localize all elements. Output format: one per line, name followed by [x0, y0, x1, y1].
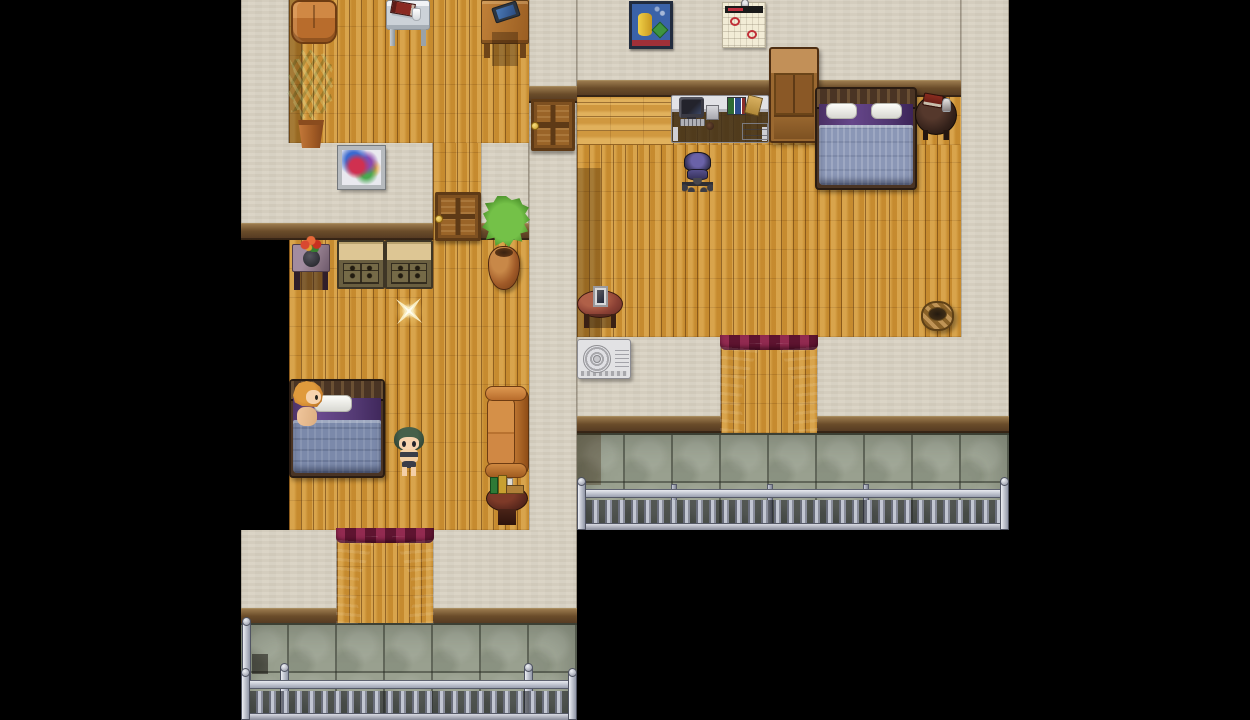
office-chair: [681, 151, 715, 193]
dresser-b: [385, 240, 433, 289]
right-railing-rail-top: [577, 489, 1009, 498]
computer-desk-monitor: [679, 97, 704, 118]
hall-door[interactable]: [435, 192, 481, 241]
photo-table: [577, 286, 623, 328]
nightstand-book: [922, 92, 944, 108]
bed-right-pillow-a: [826, 103, 857, 119]
flower-stand: [292, 238, 330, 290]
wall-plant: [482, 196, 530, 248]
computer-desk: [671, 95, 769, 143]
side-desk-tablet: [491, 0, 521, 23]
right-floor-entry: [577, 97, 673, 145]
left-doorway-curtain[interactable]: [336, 528, 434, 624]
air-conditioner-fan: [583, 345, 611, 373]
wardrobe[interactable]: [769, 47, 819, 143]
computer-desk-drawers: [742, 123, 768, 140]
side-desk: [481, 0, 529, 58]
book-table-book-flat: [506, 485, 524, 494]
wall-poster: [629, 1, 673, 49]
bed-right: [815, 87, 917, 190]
left-wall-mid: [241, 143, 433, 240]
computer-desk-keyboard: [680, 119, 705, 126]
abstract-painting: [338, 146, 385, 189]
air-conditioner: [577, 339, 631, 379]
player-character-leg-r: [411, 467, 416, 476]
left-wall-right-top: [529, 0, 577, 103]
sparkle-pickup[interactable]: [392, 294, 426, 328]
wall-calendar: [722, 2, 766, 48]
player-character[interactable]: [393, 427, 425, 477]
loveseat-back: [291, 0, 337, 44]
left-wall-upper-left: [241, 0, 289, 143]
right-railing-post-l: [577, 481, 586, 530]
photo-table-photo: [593, 286, 608, 307]
flower-stand-vase: [303, 250, 320, 267]
right-doorway-curtain-drape-r: [776, 343, 818, 431]
right-band-bottom-b: [817, 337, 1009, 433]
left-wall-right: [529, 103, 577, 530]
computer-desk-tower: [706, 105, 719, 120]
potted-plant: [287, 50, 335, 148]
left-band-bottom-b: [433, 530, 577, 625]
left-doorway-curtain-drape-r: [392, 536, 434, 624]
potted-plant-leaves: [287, 50, 335, 124]
nightstand: [915, 95, 957, 135]
leather-sofa-arm-top: [485, 386, 527, 401]
player-character-leg-l: [402, 467, 407, 476]
leather-sofa: [485, 386, 529, 478]
glass-table-cup: [412, 8, 421, 21]
wall-plant-leaves: [482, 196, 530, 248]
nightstand-glass: [942, 98, 951, 112]
wall-calendar-header: [725, 6, 763, 13]
bed-left-blanket: [293, 420, 381, 473]
office-chair-base: [682, 178, 713, 192]
sleeping-npc-torso: [297, 407, 317, 426]
left-railing-rail-top: [241, 680, 577, 689]
right-wall-column: [961, 0, 1009, 337]
clay-urn: [488, 246, 520, 290]
left-railing-post-l: [241, 672, 250, 720]
glass-table: [386, 0, 430, 46]
right-railing: [577, 479, 1009, 530]
side-door[interactable]: [531, 99, 575, 151]
right-railing-post-r: [1000, 481, 1009, 530]
leather-sofa-cushions: [487, 398, 515, 466]
wicker-basket: [921, 301, 954, 331]
left-doorway-curtain-drape-l: [336, 536, 378, 624]
computer-desk-mug: [706, 122, 714, 130]
right-railing-rail-bottom: [577, 523, 1009, 530]
left-band-bottom-a: [241, 530, 337, 625]
book-table-book-g: [490, 477, 498, 494]
right-doorway-curtain[interactable]: [720, 335, 818, 431]
bed-right-blanket: [819, 125, 913, 185]
computer-desk-lean-book: [744, 94, 763, 116]
right-doorway-curtain-drape-l: [720, 343, 762, 431]
left-railing-rail-bottom: [241, 713, 577, 720]
flower-stand-flowers: [299, 236, 323, 252]
wall-calendar-ring-b: [747, 30, 757, 39]
potted-plant-pot: [297, 120, 325, 148]
bed-right-pillow-b: [871, 103, 902, 119]
sleeping-npc-face: [306, 390, 321, 404]
game-viewport[interactable]: [0, 0, 1250, 720]
dresser-a: [337, 240, 385, 289]
wall-calendar-ring-a: [730, 17, 740, 26]
book-table: [486, 477, 528, 525]
air-conditioner-vents: [615, 347, 629, 367]
left-railing-post-r: [568, 672, 577, 720]
